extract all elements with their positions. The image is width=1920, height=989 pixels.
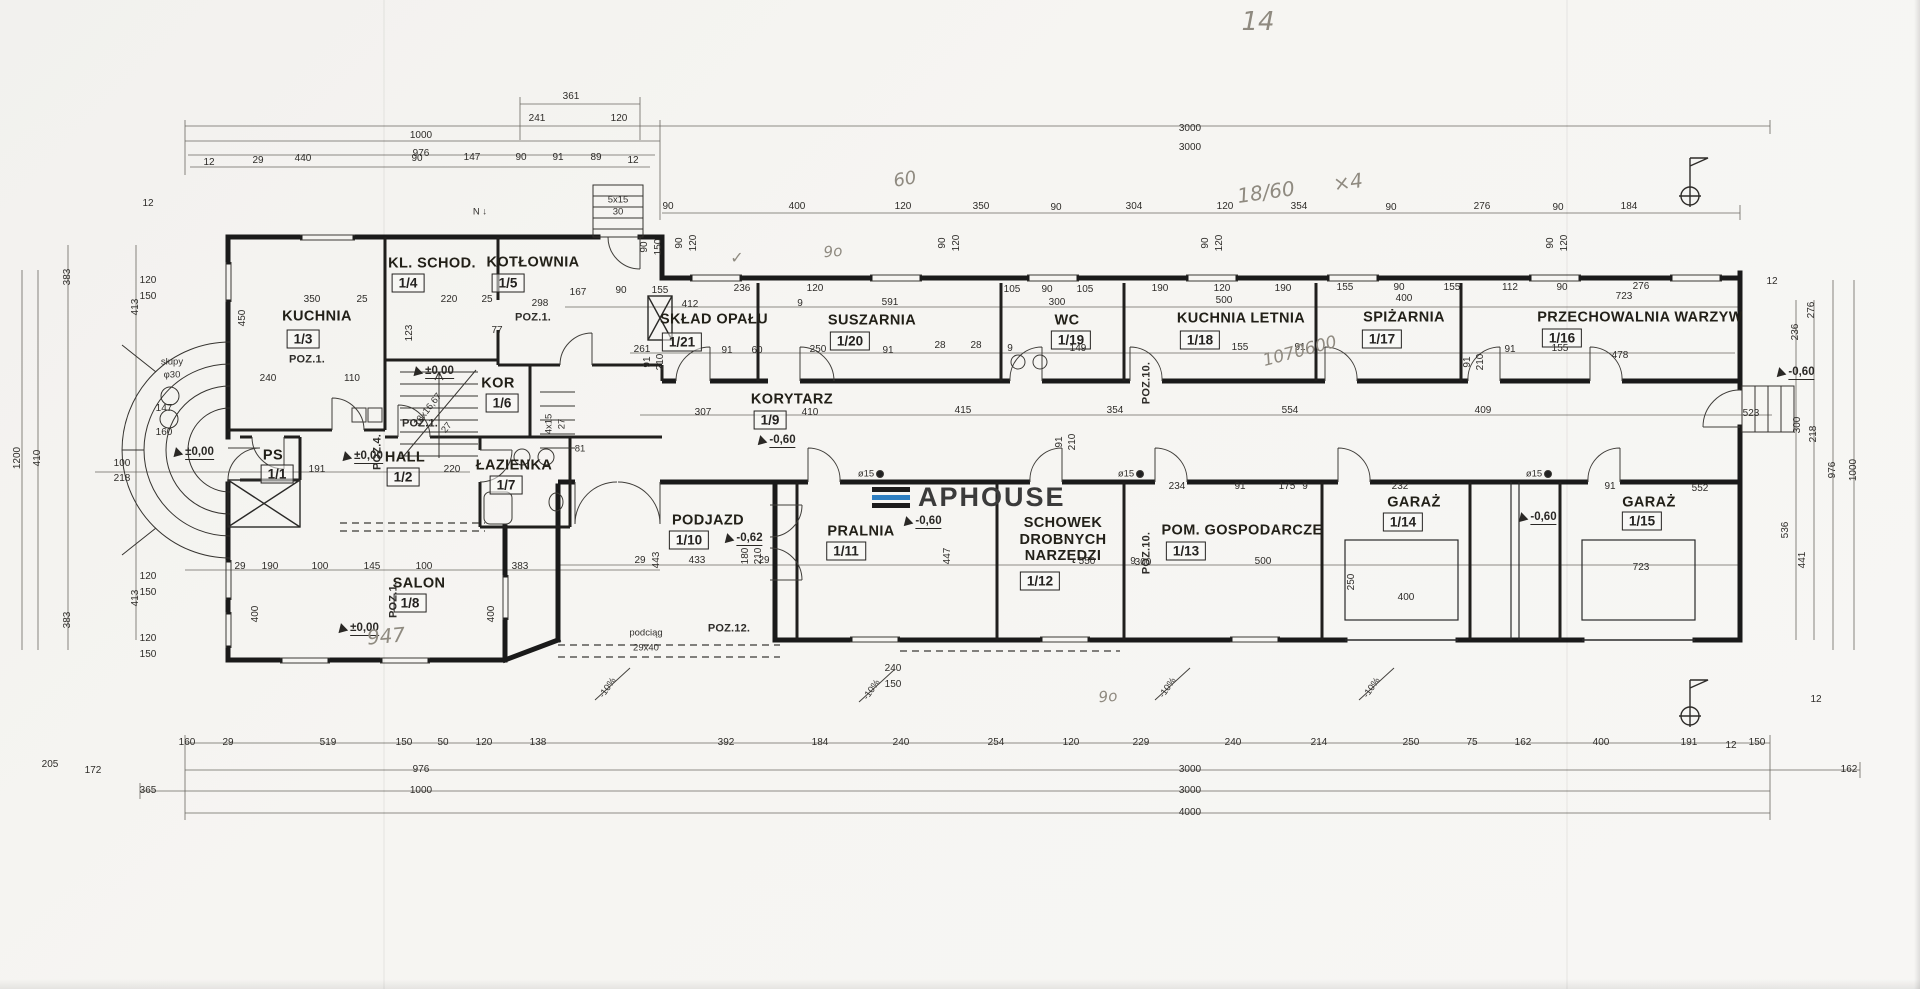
- room-label: SPIŻARNIA: [1363, 310, 1445, 327]
- dim-label: 298: [532, 299, 549, 309]
- misc-label: φ30: [164, 370, 181, 380]
- room-number: 1/15: [1622, 512, 1662, 531]
- dim-label: 190: [262, 562, 279, 572]
- room-label: KOR: [481, 376, 514, 393]
- misc-label: 30: [613, 207, 624, 217]
- dim-label: 12: [1766, 277, 1777, 287]
- dim-label: 392: [718, 738, 735, 748]
- dim-label: 90: [1201, 237, 1211, 248]
- dim-label: 90: [615, 286, 626, 296]
- dim-label: 155: [1444, 283, 1461, 293]
- level-marker: -0,62: [723, 532, 762, 544]
- room-name: HALL: [385, 450, 425, 467]
- dim-label: 155: [1337, 283, 1354, 293]
- dim-label: 276: [1474, 202, 1491, 212]
- dim-label: 120: [611, 114, 628, 124]
- dim-label: 410: [802, 408, 819, 418]
- dim-label: 12: [1810, 695, 1821, 705]
- level-triangle-icon: [755, 434, 767, 445]
- level-triangle-icon: [1516, 511, 1528, 522]
- room-label: PS: [263, 448, 283, 465]
- poz-label: POZ.12.: [708, 624, 750, 635]
- dim-label: 1000: [1849, 459, 1859, 481]
- level-value: ±0,00: [425, 365, 454, 379]
- hand-label: ✓: [730, 250, 743, 266]
- dim-label: 60: [751, 346, 762, 356]
- dim-label: 172: [85, 766, 102, 776]
- dim-label: 234: [1169, 482, 1186, 492]
- dim-label: 354: [1107, 406, 1124, 416]
- dim-label: 90: [1552, 203, 1563, 213]
- dim-label: 229: [1133, 738, 1150, 748]
- dim-label: 147: [464, 153, 481, 163]
- room-name: KUCHNIA LETNIA: [1177, 311, 1305, 328]
- dim-label: 120: [1214, 284, 1231, 294]
- level-triangle-icon: [1774, 366, 1786, 377]
- room-name: KOR: [481, 376, 514, 393]
- dim-label: 350: [973, 202, 990, 212]
- dim-label: 150: [140, 588, 157, 598]
- room-label: GARAŻ: [1387, 495, 1441, 512]
- hand-label: 947: [366, 624, 406, 647]
- level-marker: -0,60: [1517, 511, 1556, 523]
- hand-label: ×4: [1332, 170, 1364, 194]
- dim-label: 90: [1546, 237, 1556, 248]
- dim-label: 90: [411, 154, 422, 164]
- dim-label: 523: [1743, 409, 1760, 419]
- dim-label: 110: [344, 374, 360, 384]
- misc-label: ø15: [1526, 469, 1542, 479]
- dim-label: 123: [405, 325, 415, 342]
- dim-label: 241: [529, 114, 546, 124]
- dim-label: 383: [512, 562, 529, 572]
- dim-label: 3000: [1179, 786, 1201, 796]
- room-name: GARAŻ: [1622, 495, 1676, 512]
- level-value: -0,60: [1530, 511, 1556, 525]
- dim-label: 236: [734, 284, 751, 294]
- dim-label: 412: [682, 300, 699, 310]
- dim-label: 90: [515, 153, 526, 163]
- dim-label: 120: [140, 634, 157, 644]
- room-number: 1/21: [662, 333, 702, 352]
- poz-label: POZ.1.: [515, 313, 551, 324]
- room-label: SALON: [393, 576, 446, 593]
- dim-label: 218: [114, 474, 131, 484]
- dim-label: 150: [1749, 738, 1766, 748]
- dim-label: 120: [1215, 235, 1225, 252]
- dim-label: 120: [689, 235, 699, 252]
- room-name: PS: [263, 448, 283, 465]
- scan-edge-shadow: [0, 979, 1920, 989]
- dim-label: 210: [656, 354, 666, 371]
- dim-label: 450: [238, 310, 248, 327]
- dim-label: 383: [63, 269, 73, 286]
- dim-label: 443: [652, 552, 662, 569]
- dim-label: 191: [309, 465, 326, 475]
- misc-label: podciąg: [629, 628, 662, 638]
- level-marker: ±0,00: [172, 446, 214, 458]
- poz-label: POZ.10.: [1142, 362, 1153, 404]
- dim-label: 276: [1633, 282, 1650, 292]
- dim-label: 91: [882, 346, 893, 356]
- dim-label: 205: [42, 760, 59, 770]
- level-triangle-icon: [411, 365, 423, 376]
- dim-label: 175: [1279, 482, 1296, 492]
- dim-label: 276: [1807, 302, 1817, 319]
- room-number: 1/10: [669, 531, 709, 550]
- room-number: 1/14: [1383, 513, 1423, 532]
- hand-label: 14: [1241, 9, 1274, 35]
- dim-label: 91: [552, 153, 563, 163]
- dim-label: 3000: [1179, 124, 1201, 134]
- dim-label: 236: [1791, 324, 1801, 341]
- dim-label: 90: [662, 202, 673, 212]
- scan-edge-shadow: [1914, 0, 1920, 989]
- poz-label: POZ.1.: [402, 419, 438, 430]
- dim-label: 120: [476, 738, 493, 748]
- dim-label: 160: [179, 738, 196, 748]
- room-number: 1/6: [486, 394, 519, 413]
- logo-bar-mid: [872, 495, 910, 500]
- dim-label: 91: [1504, 345, 1515, 355]
- dim-label: 307: [695, 408, 712, 418]
- dim-label: 254: [988, 738, 1005, 748]
- hand-label: 60: [892, 169, 918, 191]
- dim-label: 91: [721, 346, 732, 356]
- dim-label: 261: [634, 345, 651, 355]
- dim-label: 220: [444, 465, 461, 475]
- room-label: HALL: [385, 450, 425, 467]
- dim-label: 550: [1079, 557, 1096, 567]
- dim-label: 440: [295, 154, 312, 164]
- dim-label: 232: [1392, 482, 1409, 492]
- dim-label: 400: [487, 606, 497, 623]
- room-number: 1/1: [261, 465, 294, 484]
- paper-fold-line: [1566, 0, 1568, 989]
- dim-label: 365: [140, 786, 157, 796]
- room-name: WC: [1055, 313, 1080, 330]
- dim-label: 190: [1152, 284, 1169, 294]
- room-label: GARAŻ: [1622, 495, 1676, 512]
- dim-label: 91: [643, 356, 653, 367]
- dim-label: 1000: [410, 786, 432, 796]
- dim-label: 90: [1385, 203, 1396, 213]
- slope-arrows: [595, 668, 1394, 702]
- room-number: 1/13: [1166, 542, 1206, 561]
- paper-fold-line: [383, 0, 385, 989]
- dim-label: 214: [1311, 738, 1328, 748]
- misc-label: ø15: [858, 469, 874, 479]
- dim-label: 29: [634, 556, 645, 566]
- dim-label: 976: [413, 765, 430, 775]
- dim-label: 90: [1050, 203, 1061, 213]
- dim-label: 4000: [1179, 808, 1201, 818]
- room-name: SPIŻARNIA: [1363, 310, 1445, 327]
- room-label: POM. GOSPODARCZE: [1161, 523, 1322, 540]
- dim-label: 105: [1077, 285, 1094, 295]
- room-name: SKŁAD OPAŁU: [660, 312, 768, 329]
- dim-label: 300: [1793, 417, 1803, 434]
- dim-label: 383: [63, 612, 73, 629]
- dim-label: 120: [807, 284, 824, 294]
- room-number: 1/2: [387, 468, 420, 487]
- dim-label: 162: [1841, 765, 1858, 775]
- room-name: POM. GOSPODARCZE: [1161, 523, 1322, 540]
- room-label: SUSZARNIA: [828, 313, 916, 330]
- room-number: 1/4: [392, 274, 425, 293]
- dim-label: 150: [396, 738, 413, 748]
- room-label: KOTŁOWNIA: [486, 255, 579, 272]
- dim-label: 210: [1068, 434, 1078, 451]
- dim-label: 190: [1275, 284, 1292, 294]
- dim-label: 400: [251, 606, 261, 623]
- dim-label: 554: [1282, 406, 1299, 416]
- room-name: PODJAZD: [672, 513, 744, 530]
- dim-label: 478: [1612, 351, 1629, 361]
- level-marker: -0,60: [756, 434, 795, 446]
- dim-label: 12: [142, 199, 153, 209]
- dim-label: 138: [530, 738, 547, 748]
- dim-label: 100: [312, 562, 329, 572]
- dim-label: 184: [812, 738, 829, 748]
- room-label: KUCHNIA: [282, 309, 352, 326]
- misc-label: 4x15: [544, 414, 554, 435]
- dim-label: 90: [1556, 283, 1567, 293]
- room-name: ŁAZIENKA: [476, 458, 553, 475]
- dim-label: 25: [481, 295, 492, 305]
- dim-label: 3000: [1179, 765, 1201, 775]
- dim-label: 91: [1234, 482, 1245, 492]
- dim-label: 220: [441, 295, 458, 305]
- dim-label: 519: [320, 738, 337, 748]
- dim-label: 591: [882, 298, 899, 308]
- dim-label: 240: [260, 374, 277, 384]
- dim-label: 9: [1007, 344, 1013, 354]
- room-number: 1/7: [490, 476, 523, 495]
- room-label: PRZECHOWALNIA WARZYW: [1537, 310, 1743, 327]
- misc-label: 29x40: [633, 643, 659, 653]
- room-name: KOTŁOWNIA: [486, 255, 579, 272]
- dim-label: 75: [1466, 738, 1477, 748]
- hand-label: 9o: [823, 244, 843, 261]
- dim-label: 120: [1217, 202, 1234, 212]
- dim-label: 12: [203, 158, 214, 168]
- level-triangle-icon: [722, 532, 734, 543]
- room-label: ŁAZIENKA: [476, 458, 553, 475]
- level-marker: -0,60: [902, 515, 941, 527]
- dim-label: 3000: [1179, 143, 1201, 153]
- level-triangle-icon: [171, 446, 183, 457]
- dim-label: 77: [491, 326, 502, 336]
- room-number: 1/11: [826, 542, 866, 561]
- room-name: KORYTARZ: [751, 392, 833, 409]
- dim-label: 1200: [13, 447, 23, 469]
- dim-label: 28: [934, 341, 945, 351]
- floorplan-canvas: APHOUSE PS1/1HALL1/2KUCHNIA1/3KL. SCHOD.…: [0, 0, 1920, 989]
- dim-label: 552: [1692, 484, 1709, 494]
- dim-label: 409: [1475, 406, 1492, 416]
- room-label: KUCHNIA LETNIA: [1177, 311, 1305, 328]
- dim-label: 250: [1403, 738, 1420, 748]
- misc-label: ø15: [1118, 469, 1134, 479]
- level-value: ±0,00: [185, 446, 214, 460]
- dim-label: 149: [1070, 344, 1087, 354]
- dim-label: 91: [1463, 356, 1473, 367]
- dim-label: 90: [938, 237, 948, 248]
- dim-label: 240: [893, 738, 910, 748]
- dim-label: 250: [810, 345, 827, 355]
- dim-label: 400: [1398, 593, 1415, 603]
- level-marker: -0,60: [1775, 366, 1814, 378]
- room-name: PRZECHOWALNIA WARZYW: [1537, 310, 1743, 327]
- dim-label: 90: [1041, 285, 1052, 295]
- dim-label: 12: [1725, 741, 1736, 751]
- level-triangle-icon: [901, 515, 913, 526]
- hand-label: 9o: [1098, 689, 1118, 706]
- room-name: GARAŻ: [1387, 495, 1441, 512]
- level-triangle-icon: [340, 450, 352, 461]
- dim-label: 90: [675, 237, 685, 248]
- aphouse-logo-text: APHOUSE: [918, 482, 1066, 513]
- dim-label: 28: [970, 341, 981, 351]
- poz-label: POZ.4.: [373, 434, 384, 470]
- dim-label: 120: [952, 235, 962, 252]
- dim-label: 90: [1393, 283, 1404, 293]
- dim-label: 191: [1681, 738, 1698, 748]
- dim-label: 250: [1347, 574, 1357, 591]
- dim-label: 25: [356, 295, 367, 305]
- dim-label: 150: [654, 239, 664, 256]
- room-name: SUSZARNIA: [828, 313, 916, 330]
- scanned-floorplan-page: { "logo":{"text":"APHOUSE","bar_top":"#1…: [0, 0, 1920, 989]
- dim-label: 105: [1004, 285, 1021, 295]
- room-name: KUCHNIA: [282, 309, 352, 326]
- dim-label: 29: [222, 738, 233, 748]
- dim-label: 91: [1055, 436, 1065, 447]
- dim-label: 120: [1063, 738, 1080, 748]
- dim-label: 91: [1604, 482, 1615, 492]
- poz-label: POZ.10.: [1142, 532, 1153, 574]
- dim-label: 9: [797, 299, 803, 309]
- dim-label: 354: [1291, 202, 1308, 212]
- dim-label: 400: [1593, 738, 1610, 748]
- room-name: SALON: [393, 576, 446, 593]
- room-number: 1/17: [1362, 330, 1402, 349]
- dim-label: 160: [156, 428, 173, 438]
- poz-label: POZ.1.: [289, 355, 325, 366]
- dim-label: 723: [1616, 292, 1633, 302]
- room-label: PRALNIA: [827, 524, 894, 541]
- dim-label: 155: [1232, 343, 1249, 353]
- logo-bar-top: [872, 487, 910, 492]
- dim-label: 400: [1396, 294, 1413, 304]
- dim-label: 150: [140, 292, 157, 302]
- dim-label: 100: [114, 459, 131, 469]
- dim-label: 112: [1502, 283, 1518, 293]
- room-number: 1/9: [754, 411, 787, 430]
- dim-label: 155: [652, 286, 669, 296]
- room-number: 1/20: [830, 332, 870, 351]
- dim-label: 536: [1781, 522, 1791, 539]
- room-number: 1/12: [1020, 572, 1060, 591]
- dim-label: 29: [234, 562, 245, 572]
- dim-label: 240: [1225, 738, 1242, 748]
- dim-label: 976: [1828, 462, 1838, 479]
- dim-label: 415: [955, 406, 972, 416]
- dim-label: 400: [789, 202, 806, 212]
- dim-label: 304: [1126, 202, 1143, 212]
- dim-label: 162: [1515, 738, 1532, 748]
- dim-label: 120: [1560, 235, 1570, 252]
- level-marker: ±0,00: [412, 365, 454, 377]
- dim-label: 9: [1302, 482, 1308, 492]
- dim-label: 180: [741, 548, 751, 565]
- room-name: KL. SCHOD.: [388, 256, 476, 273]
- dim-label: 361: [563, 92, 580, 102]
- level-value: -0,60: [915, 515, 941, 529]
- level-value: -0,60: [769, 434, 795, 448]
- room-label: PODJAZD: [672, 513, 744, 530]
- dim-label: 184: [1621, 202, 1638, 212]
- room-label: SKŁAD OPAŁU: [660, 312, 768, 329]
- misc-label: 5x15: [608, 195, 629, 205]
- dim-label: 100: [416, 562, 433, 572]
- misc-label: słupy: [161, 357, 183, 367]
- misc-label: 81: [575, 444, 586, 454]
- dim-label: 410: [33, 450, 43, 467]
- dim-label: 218: [1809, 426, 1819, 443]
- dim-label: 155: [1552, 344, 1569, 354]
- misc-label: 27: [557, 419, 567, 430]
- dim-label: 147: [156, 404, 173, 414]
- room-label: KL. SCHOD.: [388, 256, 476, 273]
- level-value: -0,62: [736, 532, 762, 546]
- dim-label: 433: [689, 556, 706, 566]
- dim-label: 1000: [410, 131, 432, 141]
- dim-label: 50: [437, 738, 448, 748]
- level-value: -0,60: [1788, 366, 1814, 380]
- room-label: WC: [1055, 313, 1080, 330]
- misc-label: N ↓: [473, 207, 487, 217]
- level-triangle-icon: [336, 622, 348, 633]
- dim-label: 210: [1476, 354, 1486, 371]
- dim-label: 120: [140, 572, 157, 582]
- aphouse-logo: APHOUSE: [872, 482, 1066, 513]
- dim-label: 500: [1255, 557, 1272, 567]
- dim-label: 90: [640, 241, 650, 252]
- aphouse-logo-bars-icon: [872, 487, 910, 508]
- dim-label: 447: [943, 548, 953, 565]
- dim-label: 89: [590, 153, 601, 163]
- logo-bar-bot: [872, 503, 910, 508]
- dim-label: 150: [885, 680, 902, 690]
- room-name: PRALNIA: [827, 524, 894, 541]
- dim-label: 723: [1633, 563, 1650, 573]
- room-number: 1/18: [1180, 331, 1220, 350]
- dim-label: 12: [627, 156, 638, 166]
- dim-label: 350: [304, 295, 321, 305]
- dim-label: 120: [140, 276, 157, 286]
- dim-label: 441: [1798, 552, 1808, 569]
- dim-label: 120: [895, 202, 912, 212]
- dim-label: 413: [131, 590, 141, 607]
- dim-label: 167: [570, 288, 587, 298]
- dimension-lines: [22, 97, 1860, 820]
- dim-label: 29: [758, 556, 769, 566]
- room-number: 1/5: [492, 274, 525, 293]
- dim-label: 29: [252, 156, 263, 166]
- poz-label: POZ.1.: [389, 582, 400, 618]
